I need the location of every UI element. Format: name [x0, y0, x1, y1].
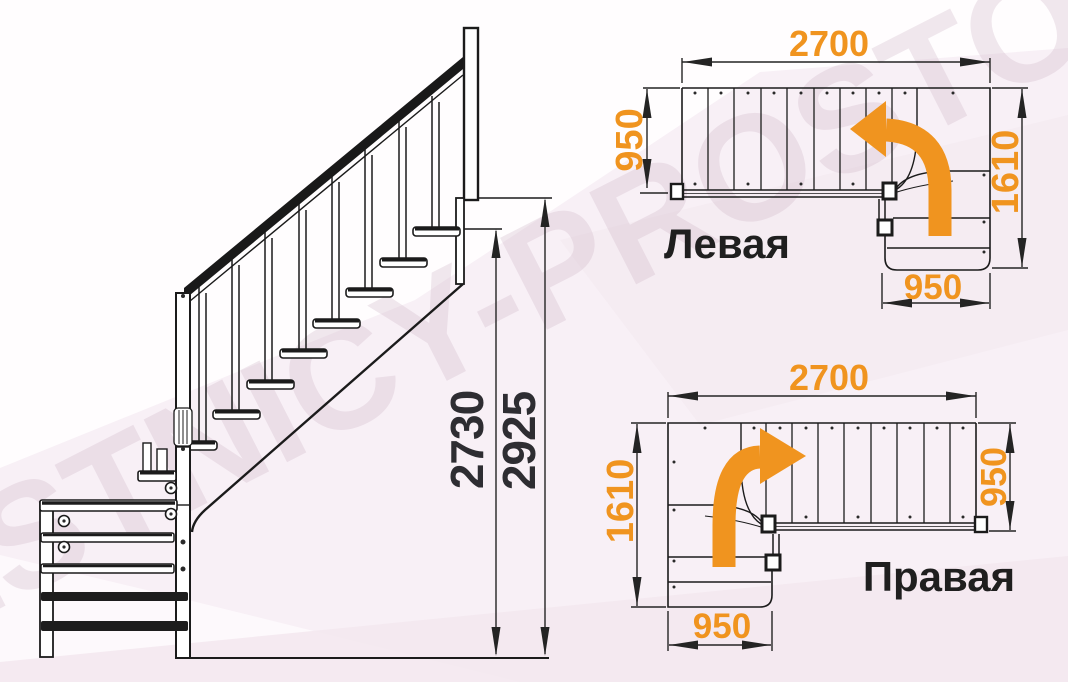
svg-text:2700: 2700	[789, 357, 869, 398]
svg-text:1610: 1610	[600, 459, 642, 544]
plan-left-label: Левая	[664, 220, 790, 267]
svg-text:950: 950	[693, 607, 751, 646]
corner-post	[762, 516, 775, 532]
dim-2730-text: 2730	[441, 391, 493, 489]
top-newel-post	[464, 28, 478, 200]
svg-text:1610: 1610	[985, 130, 1027, 215]
dark-step-bar	[41, 621, 188, 631]
landing-post	[878, 220, 892, 235]
stringer-end-cap	[671, 184, 683, 199]
plan-right-label: Правая	[863, 553, 1015, 600]
svg-text:950: 950	[609, 108, 651, 171]
landing-riser-board	[456, 198, 464, 284]
staircase-drawing: LESTNICY-PROSTO.RU	[0, 0, 1068, 682]
svg-text:950: 950	[904, 268, 962, 307]
dark-step-bar	[41, 592, 188, 601]
stringer-end-cap	[975, 517, 987, 532]
dim-2925-text: 2925	[493, 391, 545, 490]
svg-text:2700: 2700	[789, 23, 869, 64]
svg-text:950: 950	[973, 447, 1014, 507]
landing-post	[766, 555, 780, 570]
corner-post	[883, 183, 896, 199]
